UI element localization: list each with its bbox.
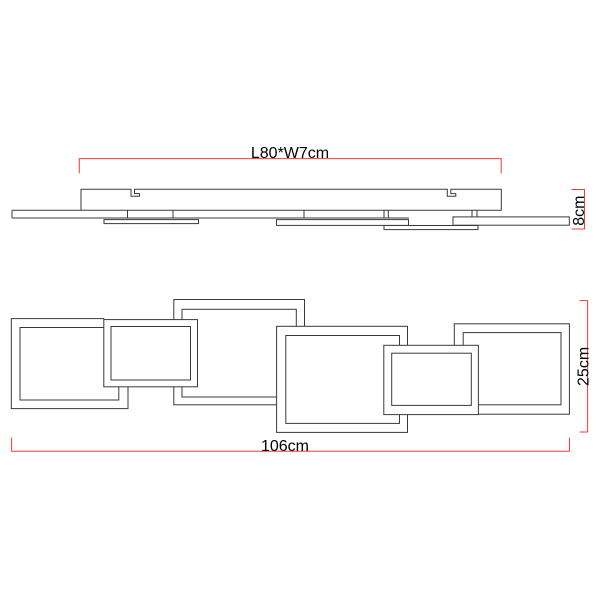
svg-text:106cm: 106cm	[261, 438, 309, 455]
svg-text:L80*W7cm: L80*W7cm	[251, 145, 329, 162]
svg-text:8cm: 8cm	[571, 196, 588, 226]
svg-text:25cm: 25cm	[575, 347, 592, 386]
